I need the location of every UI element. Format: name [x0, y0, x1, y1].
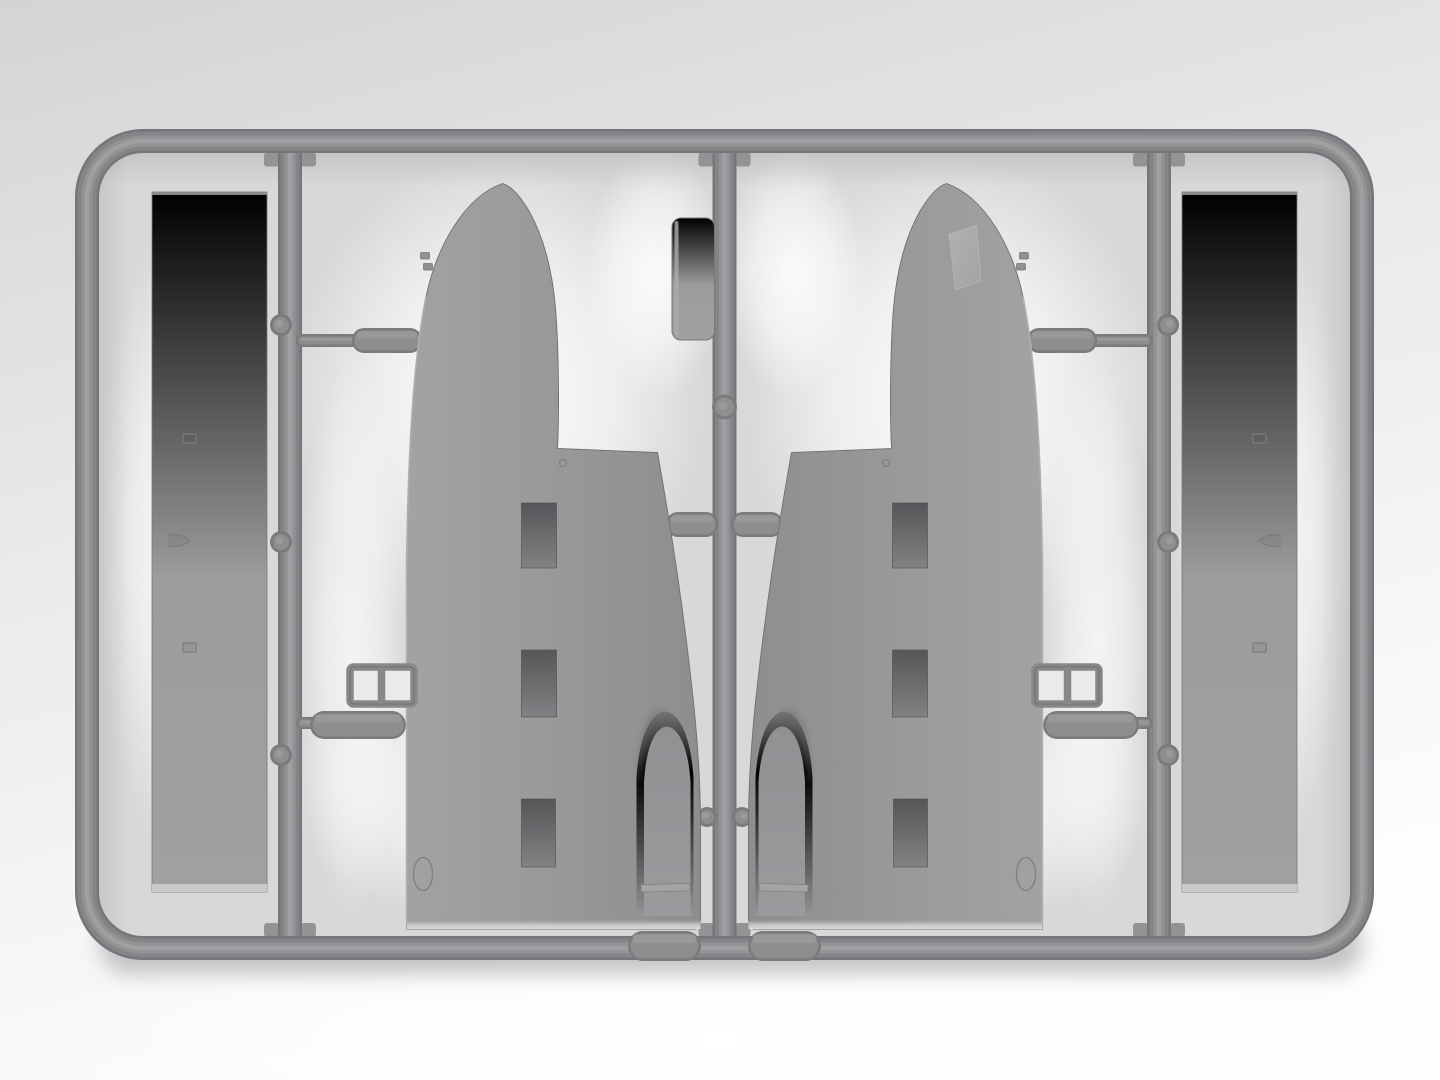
gate-node-highlight: [719, 401, 728, 410]
junction-fillet: [699, 923, 714, 937]
junction-fillet: [264, 923, 279, 937]
junction-fillet: [301, 923, 316, 937]
door-panel-part: [672, 218, 715, 340]
bottom-bevel: [407, 919, 701, 929]
side-panel-part: [152, 192, 267, 892]
junction-fillet: [1170, 923, 1185, 937]
window-frame-part: [350, 667, 414, 704]
arch-recess: [637, 709, 694, 916]
window-opening: [522, 503, 557, 568]
junction-fillet: [301, 153, 316, 167]
window-opening: [522, 650, 557, 717]
gate-node-highlight: [702, 812, 709, 819]
sprue-render-stage: [0, 0, 1440, 1080]
junction-fillet: [1133, 923, 1148, 937]
sprue-gate-pill-highlight: [357, 332, 417, 339]
gate-node-highlight: [276, 537, 284, 545]
panel-detail-rect: [183, 643, 196, 652]
junction-fillet: [1170, 153, 1185, 167]
gate-node-highlight: [276, 750, 284, 758]
junction-fillet: [699, 153, 714, 167]
edge-tab: [424, 264, 433, 271]
panel-detail-rect: [183, 434, 196, 443]
sprue-gate-pill-highlight: [315, 715, 401, 723]
junction-fillet: [736, 153, 751, 167]
sprue-render: [0, 0, 1440, 1080]
sprue-gate-pill-highlight: [671, 516, 713, 523]
junction-fillet: [736, 923, 751, 937]
sprue-gates-center: [712, 395, 737, 420]
window-opening: [522, 799, 556, 867]
sprue-gate-pill-highlight: [301, 338, 353, 342]
junction-fillet: [1133, 153, 1148, 167]
edge-tab: [421, 253, 430, 260]
sprue-gate-pill-highlight: [633, 935, 696, 943]
gate-node-highlight: [276, 320, 284, 328]
junction-fillet: [264, 153, 279, 167]
